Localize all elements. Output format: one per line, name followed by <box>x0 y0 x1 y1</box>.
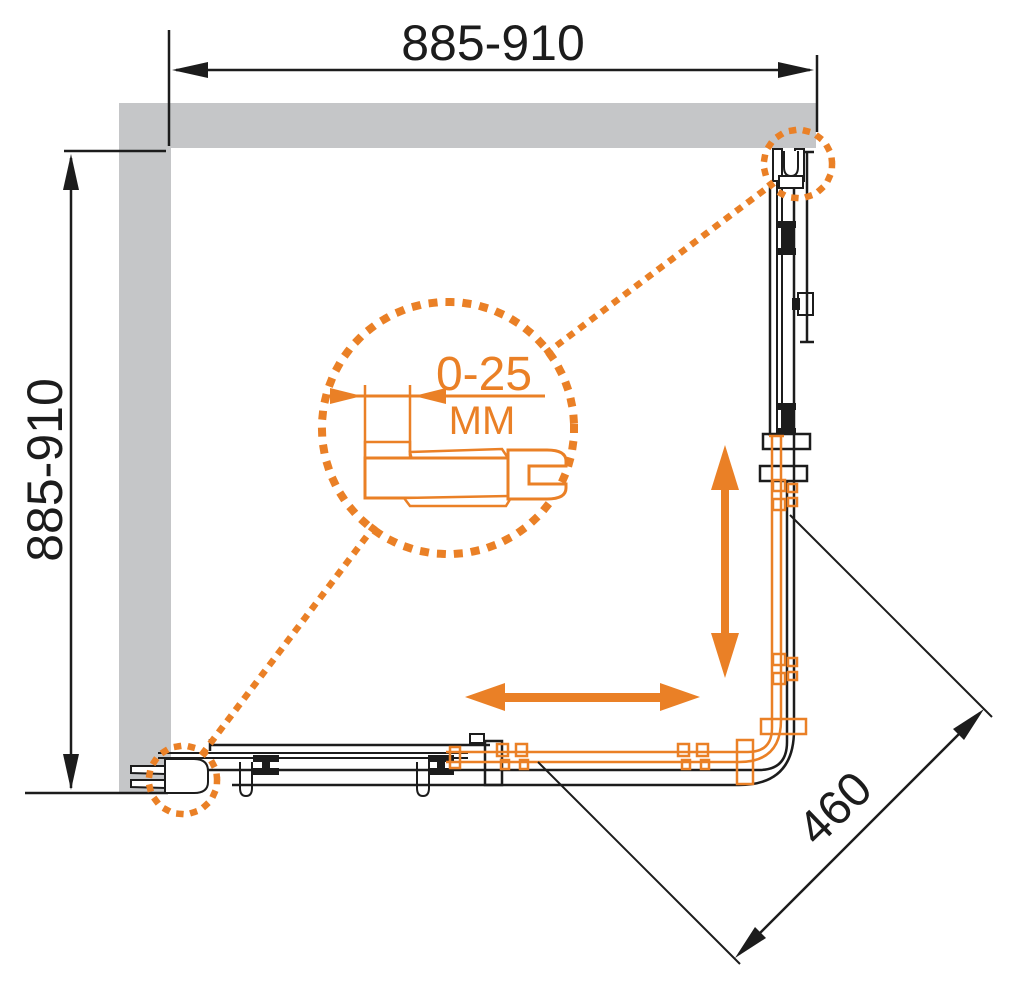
leader-line-top-right <box>548 185 771 352</box>
diagonal-extension-lower <box>538 762 740 964</box>
profile-base <box>779 176 803 188</box>
left-dimension-arrow-top <box>63 154 79 190</box>
leader-line-bottom-left <box>203 528 373 753</box>
profile-glass-fork <box>508 450 566 499</box>
profile-body <box>165 759 208 793</box>
center-post-cap <box>470 734 484 743</box>
left-dimension-label: 885-910 <box>17 378 73 562</box>
wall-top <box>119 103 816 148</box>
door-roller-bottom-right <box>678 744 709 769</box>
walls <box>119 103 816 793</box>
wall-left <box>119 103 171 793</box>
adjustment-value-label: 0-25 <box>436 348 532 401</box>
slide-arrow-horizontal <box>465 683 700 711</box>
profile-u-body <box>784 151 798 176</box>
roller-clamp-left <box>253 755 279 775</box>
diagonal-dimension: 460 <box>538 515 992 964</box>
diagonal-dimension-line <box>739 713 980 954</box>
diagonal-dimension-label: 460 <box>788 762 882 856</box>
track-inner-corner <box>165 481 787 770</box>
diagram-canvas: 885-910 885-910 <box>0 0 1020 1000</box>
slide-arrow-vertical <box>711 445 739 678</box>
adjustment-arrow-right <box>330 388 362 404</box>
top-dimension-arrow-left <box>172 62 208 78</box>
sliding-door-handle <box>761 719 806 734</box>
profile-bottom-lip <box>404 496 512 506</box>
technical-drawing-page: 885-910 885-910 <box>0 0 1020 1000</box>
diagonal-extension-upper <box>790 515 992 717</box>
guide-hook-left <box>240 762 252 796</box>
guide-hook-right <box>417 762 429 796</box>
left-dimension-arrow-bottom <box>63 754 79 790</box>
top-dimension-arrow-right <box>778 62 814 78</box>
profile-body <box>365 458 508 498</box>
adjustment-unit-label: MM <box>449 399 516 443</box>
profile-cross-section <box>365 442 566 506</box>
top-dimension-label: 885-910 <box>401 15 585 71</box>
detail-content: 0-25 MM <box>323 348 566 506</box>
